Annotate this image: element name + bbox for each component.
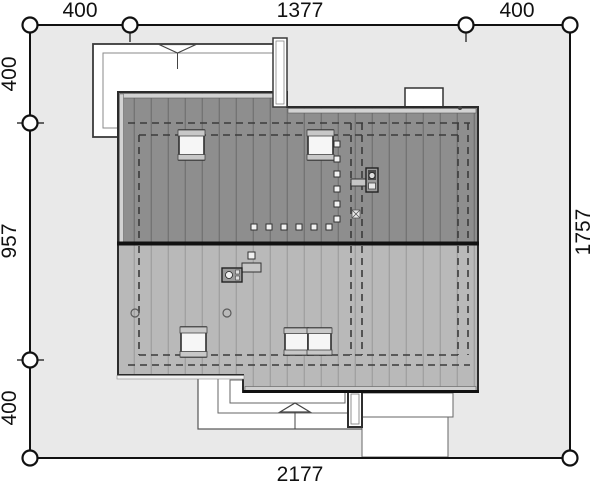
roof-walkway-upper [351,179,367,186]
gutter-south-left [117,376,244,380]
chimney-north [405,88,443,108]
dimension-label-top-middle: 1377 [277,0,324,22]
dimension-marker [459,18,474,33]
dimension-label-top-right: 400 [499,0,534,22]
dimension-label-right: 1757 [572,209,595,256]
vent-detail-b [236,276,240,280]
chimney-south [348,391,362,427]
site-plan-drawing: 400 1377 400 400 957 400 1757 2177 [0,0,600,491]
roof-window [307,328,332,355]
roof-window [307,130,334,160]
roof-walkway-lower [242,263,261,272]
vent-stack-upper-base [369,183,376,189]
dimension-label-left-middle: 957 [0,223,21,258]
fascia-north-right [288,109,476,114]
roof-window [284,328,309,355]
dimension-label-left-upper: 400 [0,56,21,91]
roof-hatch-marker [352,210,360,218]
dimension-label-left-lower: 400 [0,390,21,425]
driveway-south [362,393,453,457]
fascia-west-upper [120,94,124,242]
roof-upper-slope [118,92,478,243]
roof-window [180,327,207,357]
dimension-marker [23,18,38,33]
dimension-marker [123,18,138,33]
vent-square-lower [248,252,255,259]
terrace-north-wall-column [273,38,287,107]
dimension-marker [23,451,38,466]
dimension-marker [563,451,578,466]
driveway-lower-pad [362,417,448,457]
vent-flue-upper [369,173,375,179]
roof-window [178,130,205,160]
vent-flue-lower [226,272,233,279]
driveway-upper-pad [362,393,453,417]
vent-detail-a [236,270,240,274]
eave-dot-marker [458,106,462,110]
fascia-north-left [120,94,285,99]
dimension-marker [23,116,38,131]
chimney-south-body [348,391,362,427]
dimension-marker [563,18,578,33]
site-plan-page: 400 1377 400 400 957 400 1757 2177 [0,0,600,491]
dimension-label-bottom: 2177 [277,463,324,486]
dimension-label-top-left: 400 [62,0,97,22]
roof-lower-slope [118,244,478,392]
dimension-marker [23,353,38,368]
